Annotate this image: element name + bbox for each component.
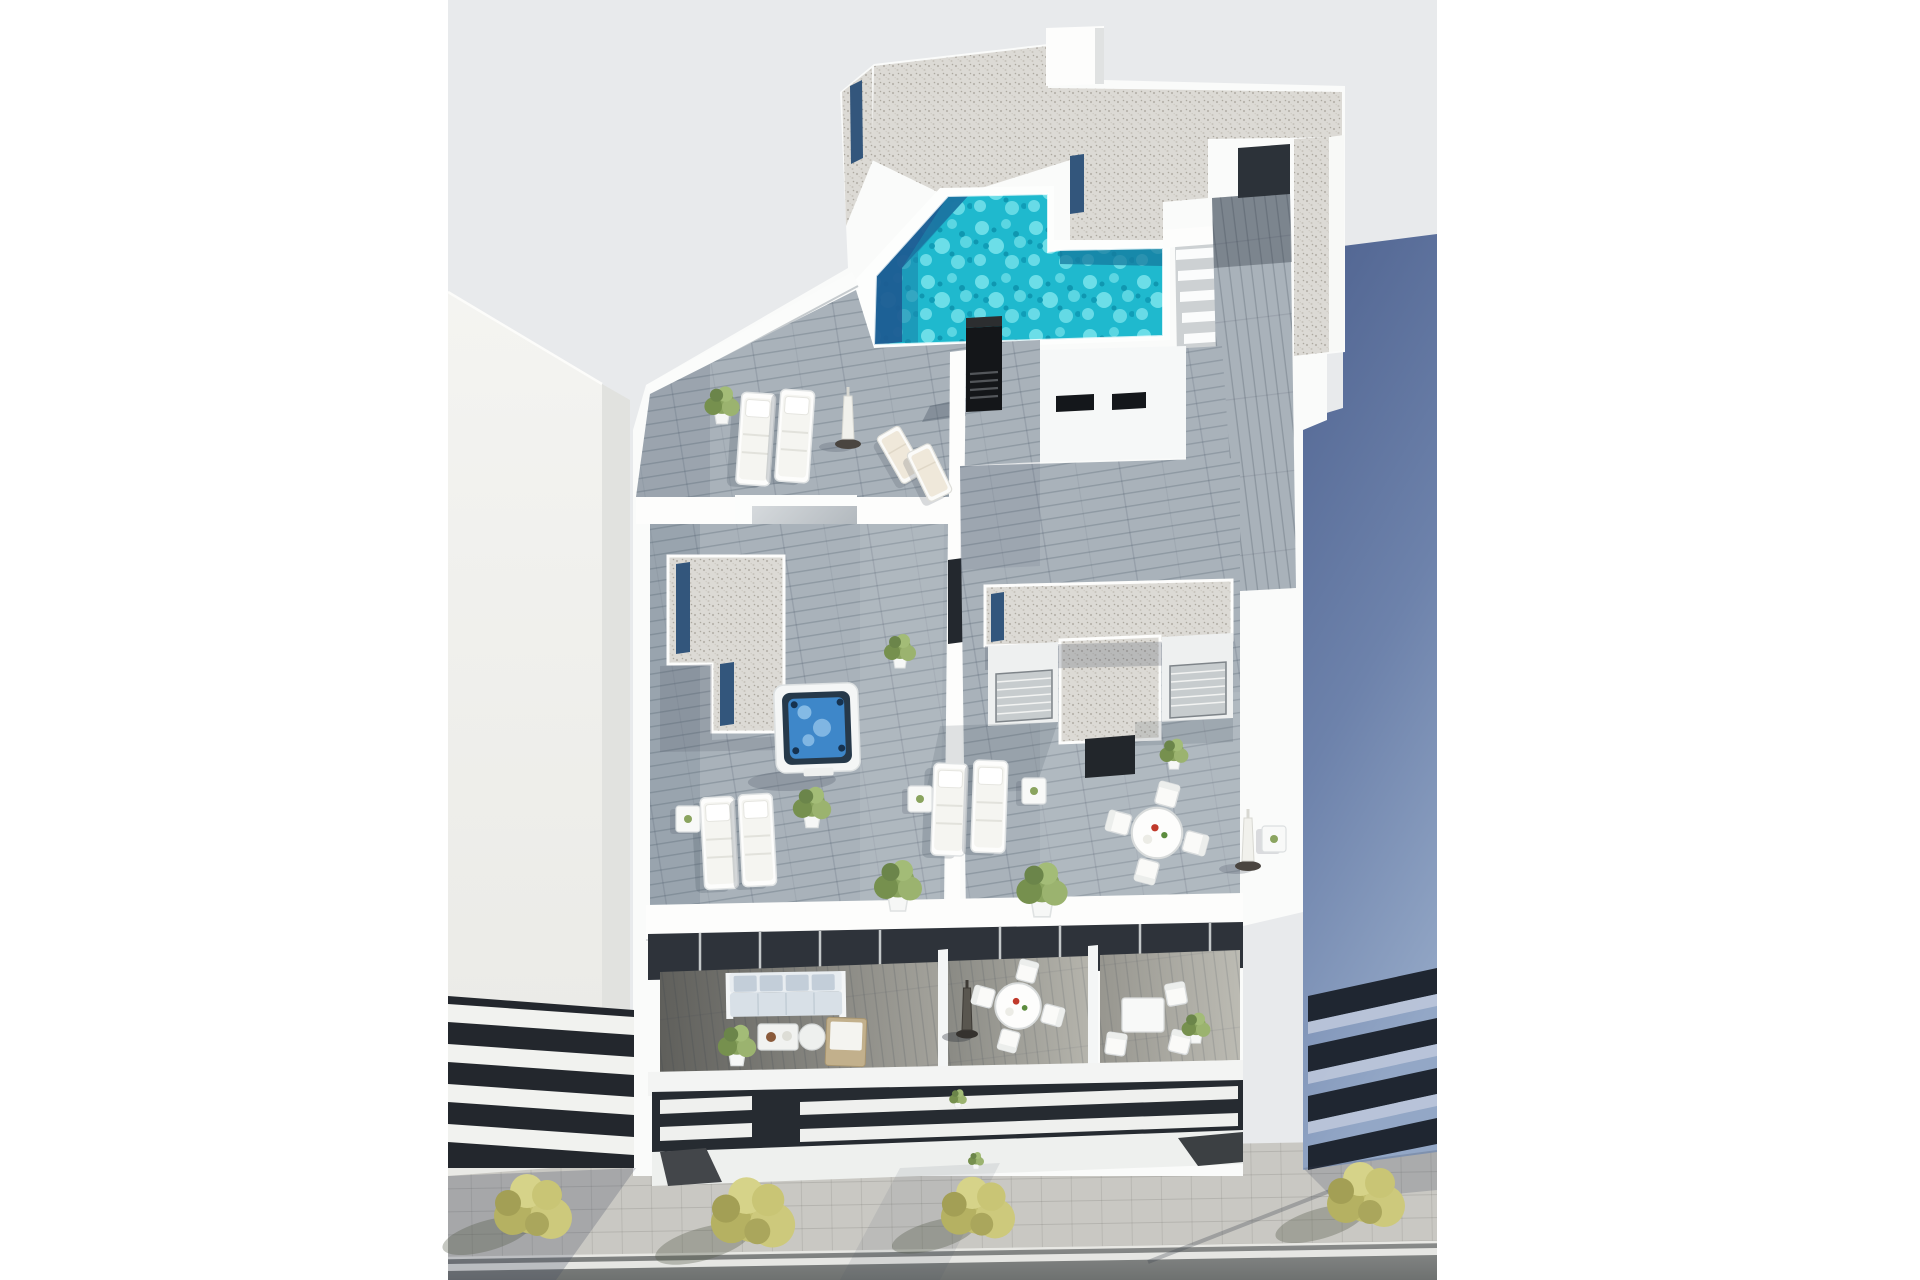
glass-balustrade-slot: [676, 562, 690, 654]
terrace-divider: [938, 949, 948, 1071]
lounger: [962, 760, 1008, 856]
outdoor-sofa-set: [726, 971, 847, 1019]
roof-bulkhead-shade: [1095, 28, 1104, 84]
dining-table: [995, 983, 1041, 1029]
bulkhead-window-slit: [1112, 392, 1146, 410]
corridor-doorway: [1238, 144, 1290, 198]
bistro-table: [1122, 998, 1164, 1032]
deck-shade: [960, 462, 1040, 570]
corridor-top-shadow: [1212, 192, 1292, 268]
table-setting: [1151, 824, 1158, 831]
lounger: [729, 793, 777, 890]
coffee-table-dish: [782, 1031, 792, 1041]
sidetable: [1256, 826, 1286, 854]
shutter-bulkhead-left: [988, 642, 1058, 726]
sidetable: [670, 806, 700, 834]
bulkhead-shadow: [1135, 718, 1233, 746]
render-canvas: [0, 0, 1920, 1280]
sidetable: [1016, 778, 1046, 806]
glass-balustrade-slot: [720, 662, 734, 726]
architectural-render: [0, 0, 1920, 1280]
table-setting: [1143, 835, 1152, 844]
bulkhead-window-slit: [1056, 394, 1094, 412]
left-building-louvers: [448, 996, 634, 1168]
table-setting: [1161, 832, 1167, 838]
terrace-divider: [1088, 945, 1098, 1067]
glass-balustrade-slot: [1070, 154, 1084, 214]
daybed: [825, 1017, 867, 1066]
shutter-bulkhead-right: [1162, 633, 1233, 722]
lounger: [765, 388, 815, 486]
coffee-table-tray: [766, 1032, 776, 1042]
table-setting: [1005, 1007, 1014, 1016]
dining-table: [1132, 808, 1182, 858]
terrace-passage: [1085, 735, 1135, 778]
table-setting: [1022, 1005, 1028, 1011]
round-side-table: [799, 1024, 825, 1050]
glass-balustrade-slot: [850, 80, 863, 164]
glass-balustrade-slot: [991, 592, 1004, 642]
coffee-table: [758, 1024, 798, 1050]
sidetable: [902, 786, 932, 814]
gravel-roof-right-wing: [1294, 137, 1329, 356]
table-setting: [1013, 998, 1020, 1005]
page: [0, 0, 1920, 1280]
right-wing-parapet: [1329, 135, 1344, 352]
left-neighbour-building: [448, 292, 634, 1176]
divider-doorway: [948, 558, 963, 644]
